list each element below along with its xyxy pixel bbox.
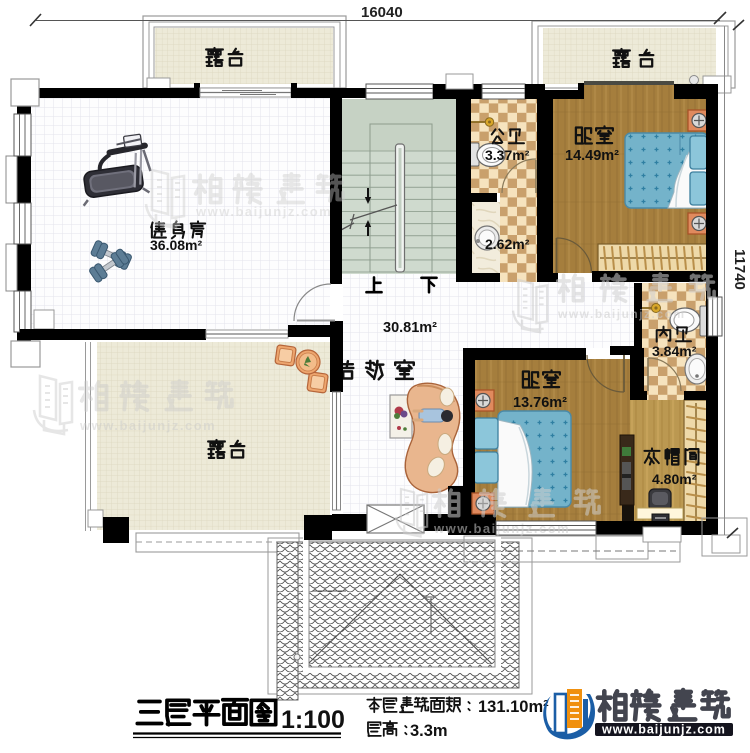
svg-text:4.80m²: 4.80m² [652, 471, 697, 487]
svg-text:www.baijunjz.com: www.baijunjz.com [557, 307, 686, 321]
svg-text:16040: 16040 [361, 4, 403, 21]
svg-text:www.baijunjz.com: www.baijunjz.com [195, 204, 332, 219]
svg-text:30.81m²: 30.81m² [383, 320, 437, 336]
svg-text:www.baijunjz.com: www.baijunjz.com [433, 521, 570, 536]
svg-text:11740: 11740 [731, 249, 748, 290]
svg-text:3.37m²: 3.37m² [485, 147, 530, 163]
svg-text:www.baijunjz.com: www.baijunjz.com [79, 418, 216, 433]
svg-text:36.08m²: 36.08m² [150, 237, 202, 253]
svg-text:131.10m²: 131.10m² [478, 698, 549, 716]
svg-text:13.76m²: 13.76m² [513, 395, 567, 411]
svg-text:1:100: 1:100 [281, 706, 345, 734]
svg-text:3.84m²: 3.84m² [652, 343, 697, 359]
svg-text:www.baijunjz.com: www.baijunjz.com [601, 723, 726, 737]
svg-text:2.62m²: 2.62m² [485, 236, 530, 252]
svg-text:14.49m²: 14.49m² [565, 148, 619, 164]
svg-text:3.3m: 3.3m [410, 722, 448, 740]
